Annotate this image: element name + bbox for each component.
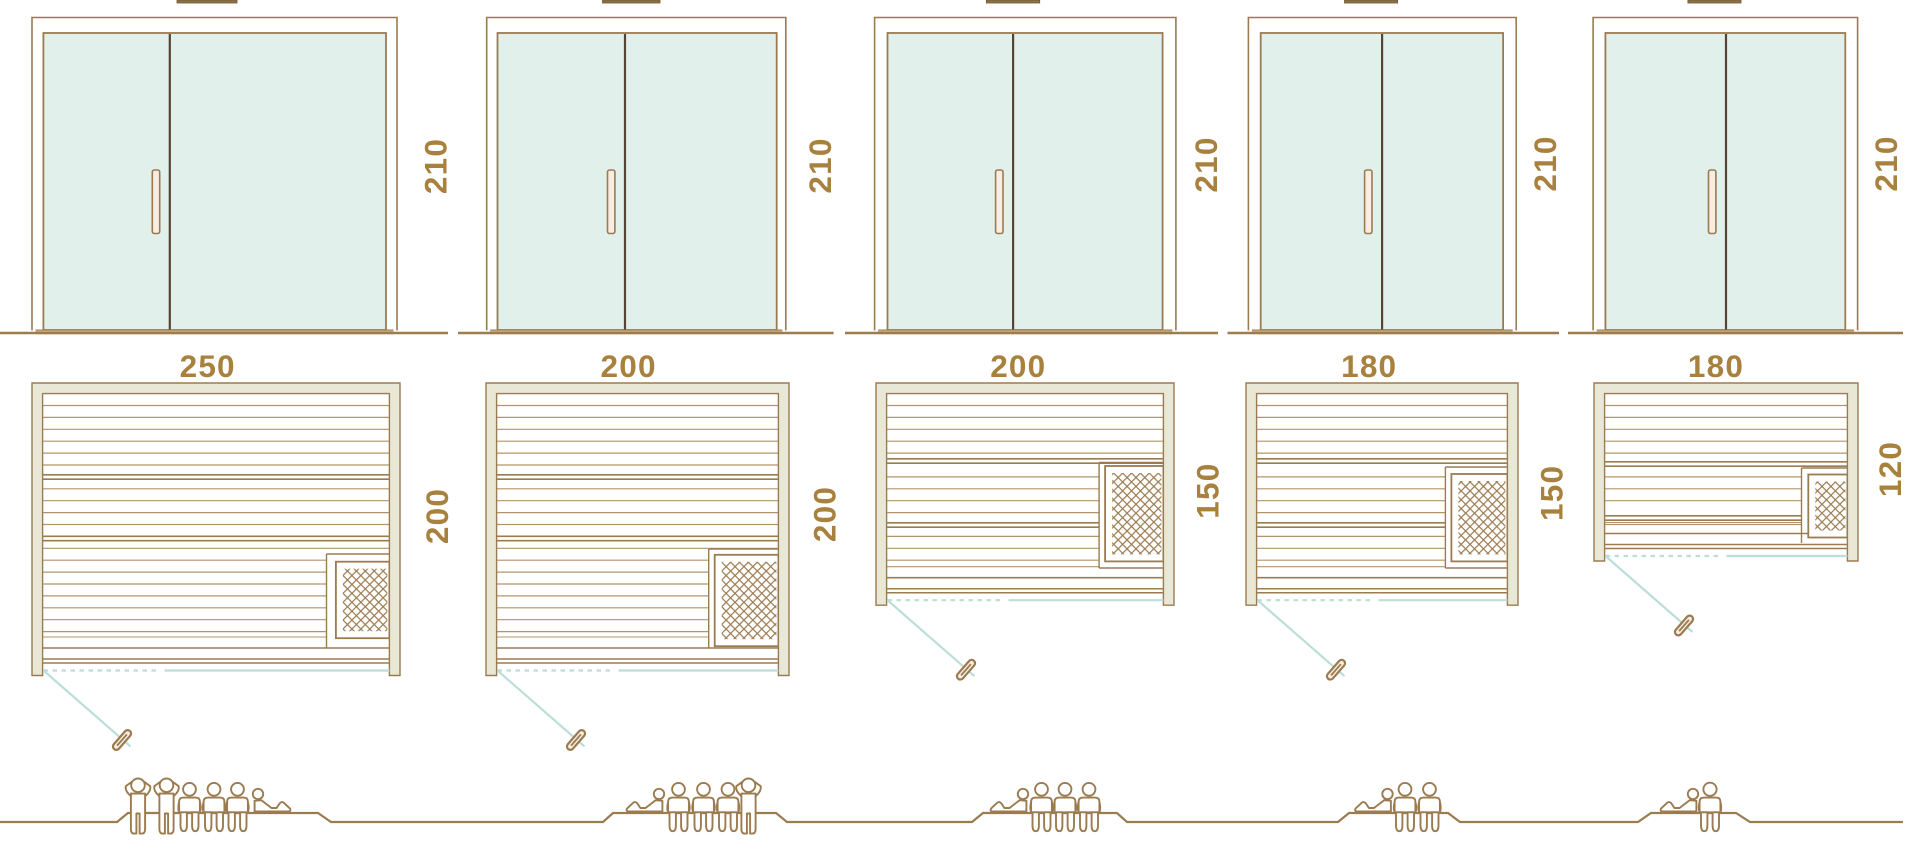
svg-text:210: 210 [802,137,838,193]
svg-text:200: 200 [419,488,455,544]
svg-text:210: 210 [1188,136,1224,192]
svg-text:210: 210 [417,138,453,194]
svg-text:200: 200 [990,348,1046,384]
svg-text:150: 150 [1533,465,1569,521]
svg-text:210: 210 [1527,135,1563,191]
svg-text:250: 250 [180,348,236,384]
svg-text:210: 210 [1868,135,1904,191]
svg-text:180: 180 [1341,348,1397,384]
svg-text:200: 200 [601,348,657,384]
svg-text:200: 200 [807,486,843,542]
svg-text:150: 150 [1189,463,1225,519]
svg-text:180: 180 [1688,348,1744,384]
svg-text:120: 120 [1872,441,1908,497]
